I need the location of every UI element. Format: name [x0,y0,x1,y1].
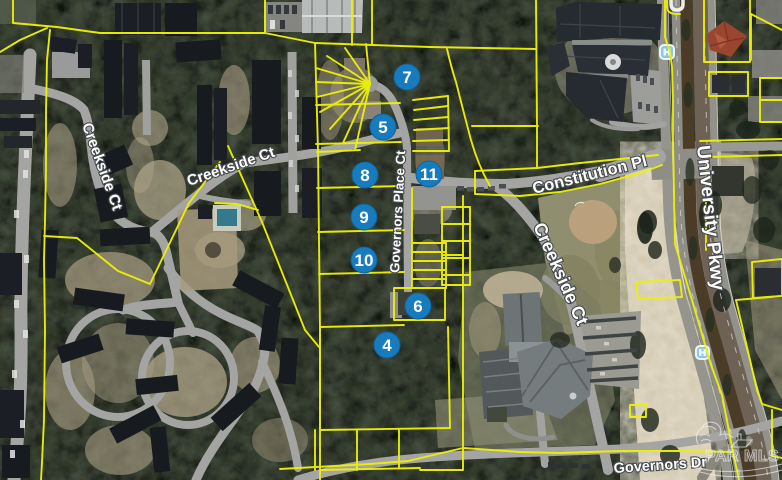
svg-text:11: 11 [420,165,438,184]
svg-text:8: 8 [360,166,369,185]
svg-text:7: 7 [402,68,411,87]
svg-text:PAR MLS: PAR MLS [705,448,779,465]
svg-text:4: 4 [382,336,392,355]
svg-text:5: 5 [378,118,387,137]
svg-text:10: 10 [355,251,374,270]
svg-text:9: 9 [359,208,368,227]
svg-text:6: 6 [413,297,422,316]
